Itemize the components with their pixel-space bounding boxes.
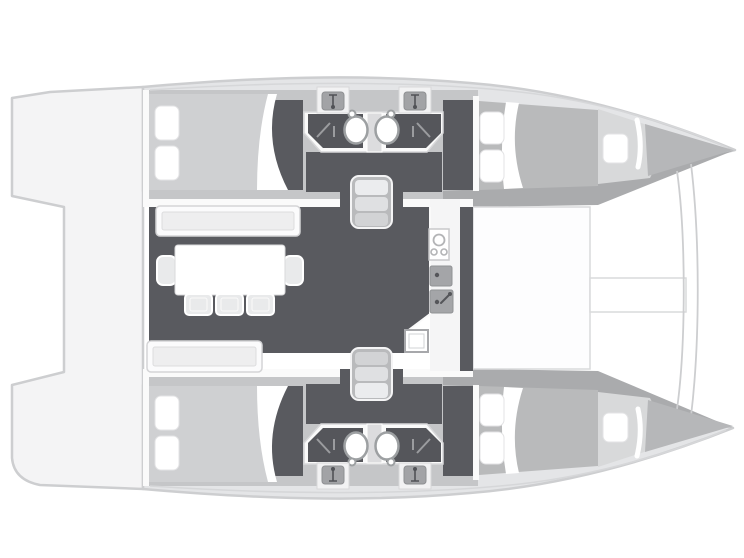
- stair-tread: [355, 180, 388, 195]
- appliance-icon: [405, 330, 428, 352]
- stair-tread: [355, 213, 388, 226]
- toilet-flush-icon: [413, 105, 417, 109]
- pillow: [480, 432, 504, 464]
- washbasin-icon: [345, 117, 368, 144]
- pillow: [480, 150, 504, 182]
- galley-sink-icon: [430, 266, 452, 286]
- faucet-icon: [388, 111, 395, 118]
- port-aft-wall: [143, 90, 149, 199]
- starboard-companionway-stairs: [351, 348, 392, 400]
- bowsprit-beam: [590, 278, 686, 312]
- cabin-wall: [473, 96, 479, 191]
- stair-tread: [355, 383, 388, 398]
- stair-tread: [355, 367, 388, 381]
- stair-tread: [355, 352, 388, 365]
- washbasin-icon: [376, 117, 399, 144]
- sofa-bench-port-cushion: [162, 212, 294, 230]
- salon-forward-bulkhead: [460, 207, 473, 371]
- faucet-icon: [448, 292, 452, 296]
- floorplan-canvas: [0, 0, 744, 558]
- chair: [216, 294, 243, 315]
- drain-icon: [435, 273, 439, 277]
- pillow: [480, 394, 504, 426]
- starboard-aft-wall: [143, 377, 149, 486]
- cabin-floor: [443, 100, 473, 190]
- drain-icon: [435, 300, 439, 304]
- toilet-flush-icon: [331, 105, 335, 109]
- pillow: [155, 436, 179, 470]
- faucet-icon: [349, 111, 356, 118]
- pillow: [155, 146, 179, 180]
- washbasin-icon: [345, 433, 368, 460]
- end-seat: [284, 256, 303, 285]
- washbasin-icon: [376, 433, 399, 460]
- faucet-icon: [388, 459, 395, 466]
- dining-table: [175, 245, 285, 295]
- cabin-wall: [473, 385, 479, 480]
- stair-tread: [355, 197, 388, 211]
- pillow: [603, 134, 628, 163]
- starboard-aft-cabin: [149, 386, 303, 482]
- catamaran-floorplan: [0, 0, 744, 558]
- pillow: [155, 106, 179, 140]
- sofa-bench-starboard-cushion: [153, 347, 256, 366]
- pillow: [603, 413, 628, 442]
- pillow: [155, 396, 179, 430]
- foredeck-plate: [473, 207, 590, 369]
- pillow: [480, 112, 504, 144]
- faucet-icon: [349, 459, 356, 466]
- port-companionway-stairs: [351, 176, 392, 228]
- chair: [185, 294, 212, 315]
- end-seat: [157, 256, 176, 285]
- toilet-flush-icon: [331, 467, 335, 471]
- toilet-flush-icon: [413, 467, 417, 471]
- cabin-floor: [443, 386, 473, 476]
- port-aft-cabin: [149, 94, 303, 190]
- chair: [247, 294, 274, 315]
